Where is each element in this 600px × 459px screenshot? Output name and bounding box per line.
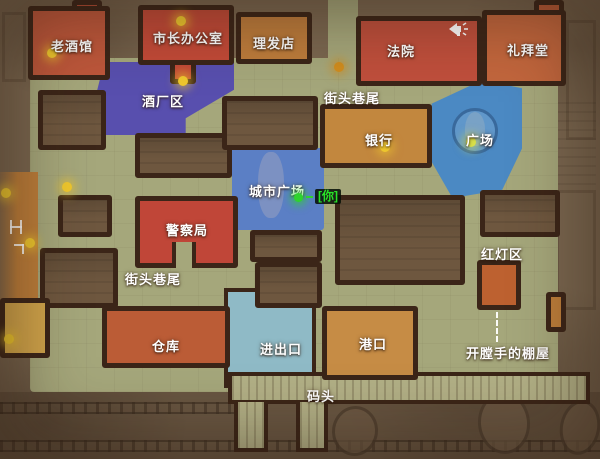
building-unnamed <box>480 190 560 237</box>
lamp-dot <box>25 238 35 248</box>
building-unnamed <box>335 195 465 285</box>
lamp-dot <box>334 62 344 72</box>
label-police-station[interactable]: 警察局 <box>166 220 208 239</box>
building-unnamed <box>250 230 322 262</box>
lamp-dot <box>62 182 72 192</box>
label-warehouse[interactable]: 仓库 <box>152 336 180 355</box>
police-station-alley <box>172 242 196 268</box>
building-unnamed <box>135 133 232 178</box>
label-port[interactable]: 港口 <box>359 334 387 353</box>
label-street-corner-north[interactable]: 街头巷尾 <box>324 88 380 107</box>
label-dock[interactable]: 码头 <box>307 386 335 405</box>
label-courthouse[interactable]: 法院 <box>387 41 415 60</box>
label-bank[interactable]: 银行 <box>365 130 393 149</box>
shack-pointer-line <box>496 312 498 342</box>
building-unnamed <box>222 96 318 150</box>
label-entrance-exit[interactable]: 进出口 <box>260 339 302 358</box>
building-yellow-room <box>0 298 50 358</box>
lamp-dot <box>176 16 186 26</box>
label-chapel[interactable]: 礼拜堂 <box>507 40 549 59</box>
lamp-dot <box>178 76 188 86</box>
building-unnamed <box>58 195 112 237</box>
label-barber-shop[interactable]: 理发店 <box>253 33 295 52</box>
lamp-dot <box>1 188 11 198</box>
player-tick <box>306 196 313 198</box>
dock-pier <box>234 402 268 452</box>
label-brewery-district[interactable]: 酒厂区 <box>142 91 184 110</box>
player-marker: [你] <box>315 189 341 204</box>
dock-pier <box>296 402 328 452</box>
lamp-dot <box>4 334 14 344</box>
ground-mark <box>10 226 22 228</box>
megaphone-icon[interactable] <box>448 20 470 38</box>
label-rippers-shack[interactable]: 开膛手的棚屋 <box>466 343 550 362</box>
building-unnamed-orange <box>546 292 566 332</box>
player-dot <box>294 193 303 202</box>
label-red-light-district[interactable]: 红灯区 <box>481 244 523 263</box>
decor-rail-track <box>0 402 255 414</box>
zone-rippers-shack[interactable] <box>477 260 521 310</box>
street-area-north <box>328 0 358 60</box>
label-street-corner-west[interactable]: 街头巷尾 <box>125 269 181 288</box>
building-unnamed <box>40 248 118 308</box>
label-tavern[interactable]: 老酒馆 <box>51 36 93 55</box>
building-unnamed <box>255 262 322 308</box>
city-map: [你] 老酒馆 市长办公室 理发店 法院 礼拜堂 酒厂区 街头巷尾 银行 广场 … <box>0 0 600 459</box>
label-mayor-office[interactable]: 市长办公室 <box>153 28 223 47</box>
building-unnamed <box>38 90 106 150</box>
label-plaza[interactable]: 广场 <box>466 130 494 149</box>
decor-building-sketch <box>2 12 26 82</box>
ground-mark <box>22 244 24 254</box>
